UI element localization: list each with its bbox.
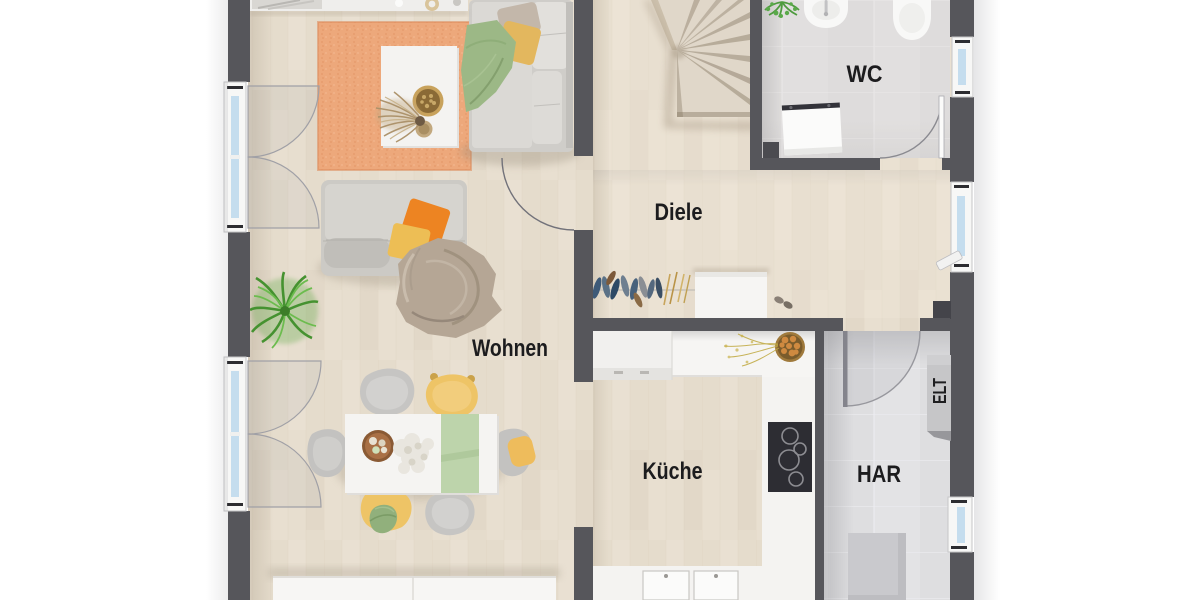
svg-text:Wohnen: Wohnen xyxy=(472,335,548,362)
svg-text:WC: WC xyxy=(847,61,883,88)
svg-text:ELT: ELT xyxy=(930,378,950,404)
svg-text:HAR: HAR xyxy=(857,461,901,488)
svg-text:Diele: Diele xyxy=(655,199,703,226)
svg-text:Küche: Küche xyxy=(643,458,703,485)
